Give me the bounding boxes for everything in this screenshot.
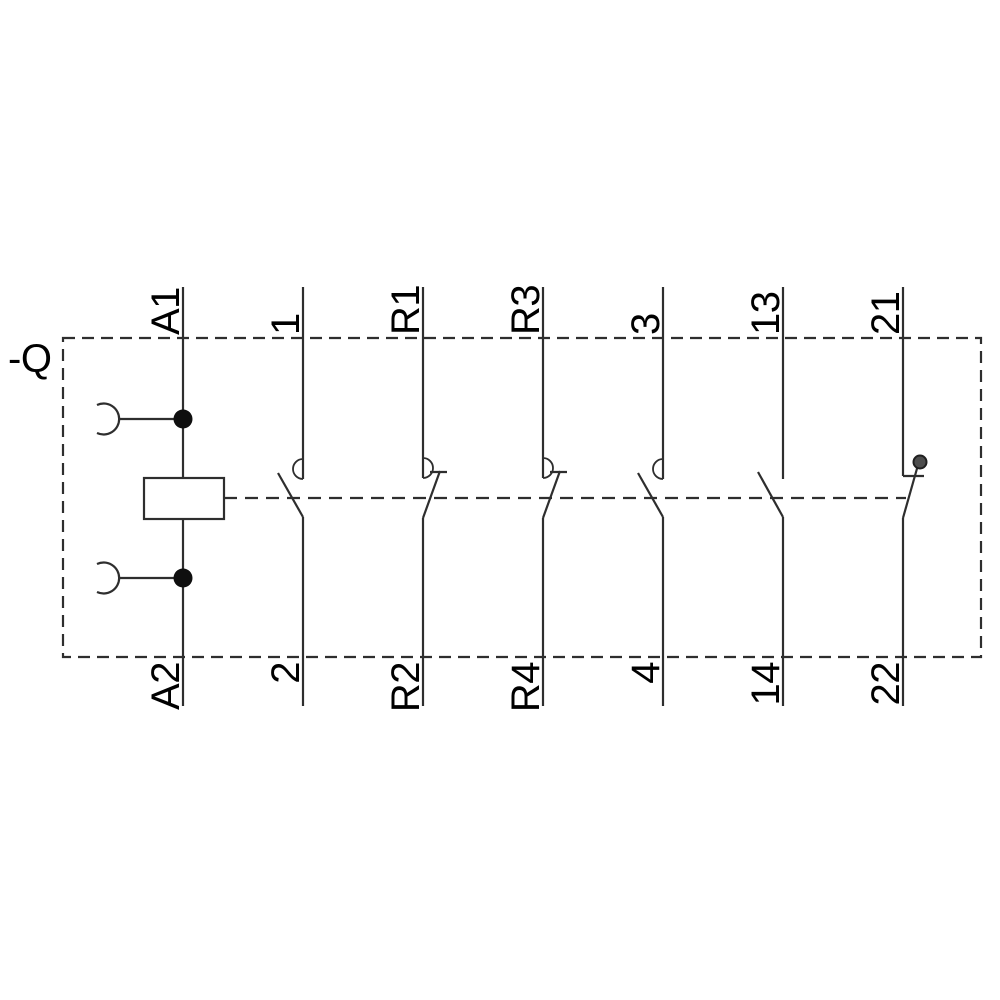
terminal-label-r3: R3: [504, 285, 548, 335]
plug-connector-arc-top: [97, 403, 119, 434]
nc-contact-blade-21-22: [903, 465, 918, 518]
coil-symbol: [144, 478, 224, 519]
terminal-label-r1: R1: [384, 285, 428, 335]
plug-connector-arc-bottom: [97, 563, 119, 594]
terminal-label-a2: A2: [144, 662, 188, 710]
schematic-page: -Q A1 A2 1 2 R1 R2 R3: [0, 0, 1000, 1000]
terminal-label-r4: R4: [504, 662, 548, 712]
terminal-label-14: 14: [744, 662, 788, 706]
fixed-contact-arc-r3: [543, 458, 553, 478]
terminal-label-r2: R2: [384, 662, 428, 712]
terminal-label-3: 3: [624, 313, 668, 335]
terminal-column-1-2: 1 2: [264, 287, 308, 706]
terminal-label-2: 2: [264, 662, 308, 684]
terminal-column-r3-r4: R3 R4: [504, 285, 567, 712]
terminal-column-21-22: 21 22: [864, 287, 927, 706]
terminal-label-21: 21: [864, 292, 908, 336]
terminal-label-a1: A1: [144, 287, 188, 335]
terminal-column-3-4: 3 4: [624, 287, 668, 706]
terminal-label-22: 22: [864, 662, 908, 706]
device-designation-label: -Q: [8, 337, 51, 381]
no-contact-blade-13-14: [758, 472, 783, 517]
terminal-label-4: 4: [624, 662, 668, 684]
contact-pivot-dot-21: [914, 456, 927, 469]
junction-dot-top: [174, 410, 193, 429]
fixed-contact-arc-1: [293, 459, 303, 479]
no-contact-blade-1-2: [278, 473, 303, 517]
terminal-label-1: 1: [264, 313, 308, 335]
terminal-column-13-14: 13 14: [744, 287, 788, 706]
fixed-contact-arc-r1: [423, 458, 433, 478]
junction-dot-bottom: [174, 569, 193, 588]
fixed-contact-arc-3: [653, 459, 663, 479]
no-contact-blade-3-4: [638, 473, 663, 517]
contactor-wiring-diagram: -Q A1 A2 1 2 R1 R2 R3: [0, 0, 1000, 1000]
terminal-label-13: 13: [744, 292, 788, 336]
terminal-column-a1-a2: A1 A2: [97, 287, 224, 710]
